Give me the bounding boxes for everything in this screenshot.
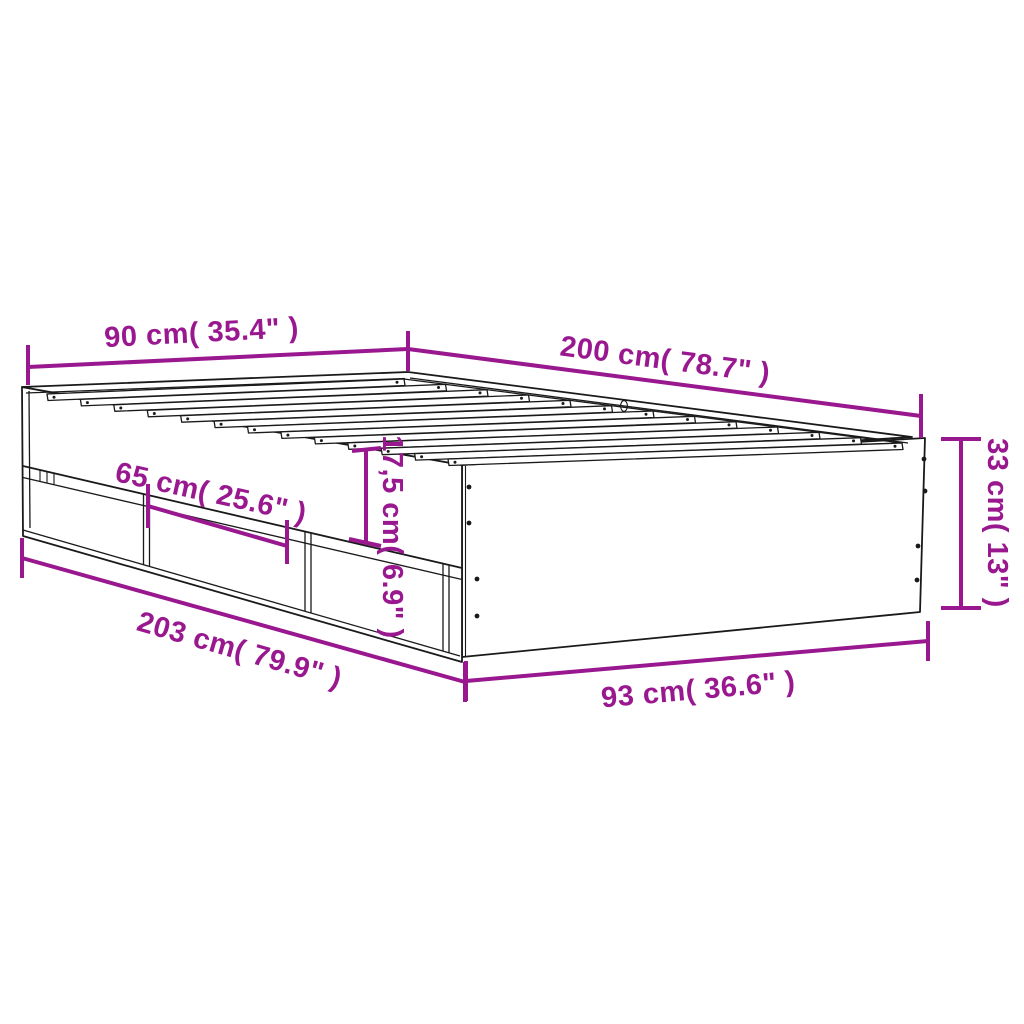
dim-head-width-label: 90 cm( 35.4" ) [103,312,299,354]
diagram-stage: 90 cm( 35.4" ) 200 cm( 78.7" ) 33 cm( 13… [0,0,1024,1024]
dim-drawer-height-label: 17,5 cm( 6.9" ) [376,435,408,638]
foot-panel [462,438,925,657]
dim-foot-height-label: 33 cm( 13" ) [981,438,1013,608]
dim-line [28,349,408,367]
dim-foot-width-label: 93 cm( 36.6" ) [600,666,797,715]
bed-dimension-diagram: 90 cm( 35.4" ) 200 cm( 78.7" ) 33 cm( 13… [0,0,1024,1024]
dimension-foot-height: 33 cm( 13" ) [941,438,1013,608]
